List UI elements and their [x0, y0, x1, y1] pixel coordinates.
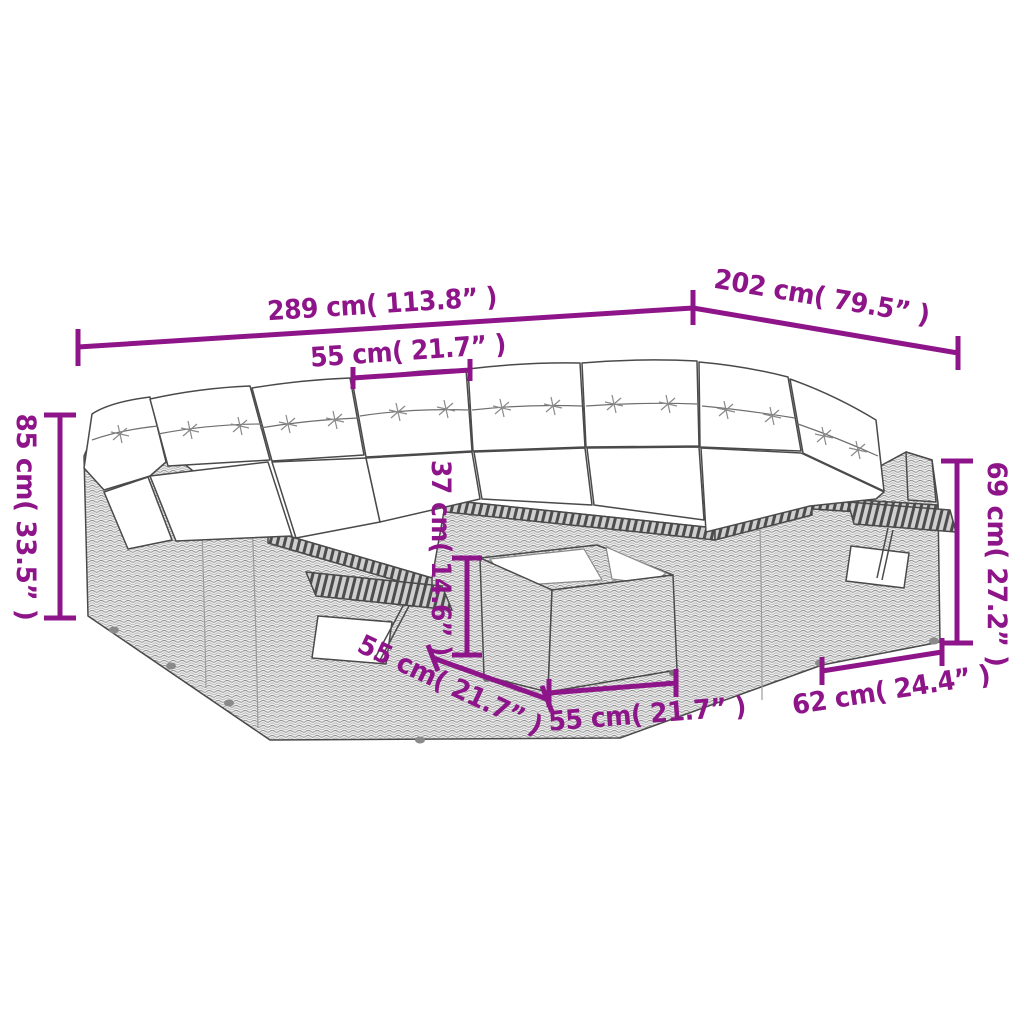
dimension-arm-height: 69 cm( 27.2” )	[941, 461, 1012, 667]
back-cushion	[252, 378, 364, 461]
dimension-back-height: 85 cm( 33.5” )	[10, 414, 76, 621]
back-cushion	[468, 363, 585, 451]
dimension-label-arm-height: 69 cm( 27.2” )	[981, 462, 1012, 667]
coffee-table	[480, 545, 677, 698]
seat-cushion	[474, 448, 592, 505]
product-diagram-canvas: 289 cm( 113.8” ) 202 cm( 79.5” ) 55 cm( …	[0, 0, 1024, 1024]
sofa-dimension-diagram: 289 cm( 113.8” ) 202 cm( 79.5” ) 55 cm( …	[0, 0, 1024, 1024]
dimension-label-back-height: 85 cm( 33.5” )	[10, 414, 41, 621]
seat-cushion	[587, 447, 704, 520]
arm-post	[906, 452, 936, 502]
dimension-overall-depth: 202 cm( 79.5” )	[693, 264, 958, 370]
back-cushion	[352, 369, 472, 457]
dimension-label-table-height: 37 cm( 14.6” )	[425, 460, 456, 656]
seat-cushion	[150, 462, 292, 541]
back-cushion	[699, 362, 801, 451]
dimension-label-seat-width: 55 cm( 21.7” )	[309, 329, 507, 374]
dimension-label-overall-depth: 202 cm( 79.5” )	[712, 264, 932, 331]
